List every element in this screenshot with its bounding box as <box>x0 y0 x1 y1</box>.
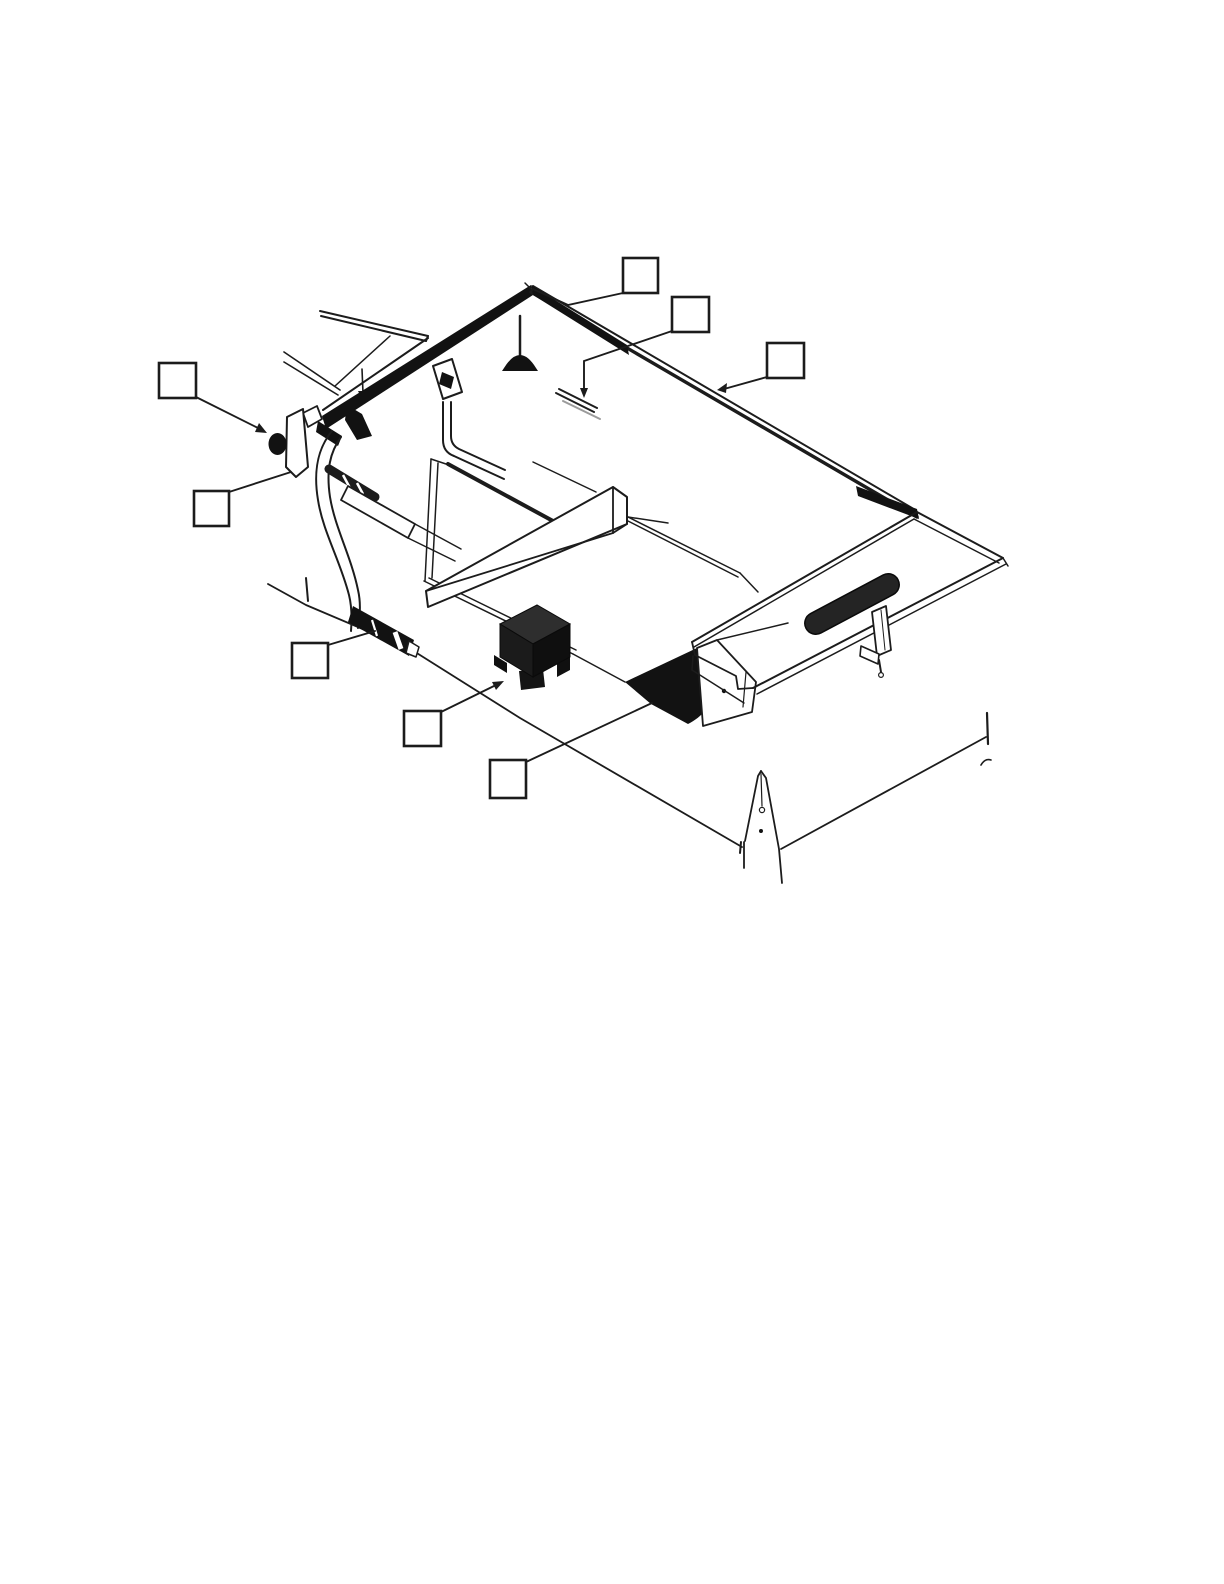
wedge-bracket <box>697 623 788 726</box>
callout-4 <box>159 363 267 433</box>
callout-1 <box>533 258 658 305</box>
callout-5 <box>194 472 291 526</box>
callout-3 <box>717 343 804 393</box>
manual-page <box>0 0 1224 1584</box>
rocker-sill <box>348 606 419 657</box>
strike-plate <box>556 389 600 419</box>
exploded-view-figure <box>0 0 1224 1584</box>
callout-8 <box>490 703 652 798</box>
callout-6 <box>292 631 375 678</box>
roof-rail <box>303 283 919 519</box>
fork-pointer <box>744 771 782 883</box>
junction-box <box>494 605 570 690</box>
side-plank <box>329 469 461 561</box>
knob-ball <box>269 433 287 455</box>
callout-7 <box>404 681 504 746</box>
side-bracket-plate <box>269 409 309 601</box>
mushroom-bumper <box>502 316 538 371</box>
buckle-fitting <box>433 359 462 399</box>
clamp <box>860 606 891 677</box>
roof-rail-left-arm <box>322 285 533 429</box>
curved-arm <box>316 431 360 631</box>
